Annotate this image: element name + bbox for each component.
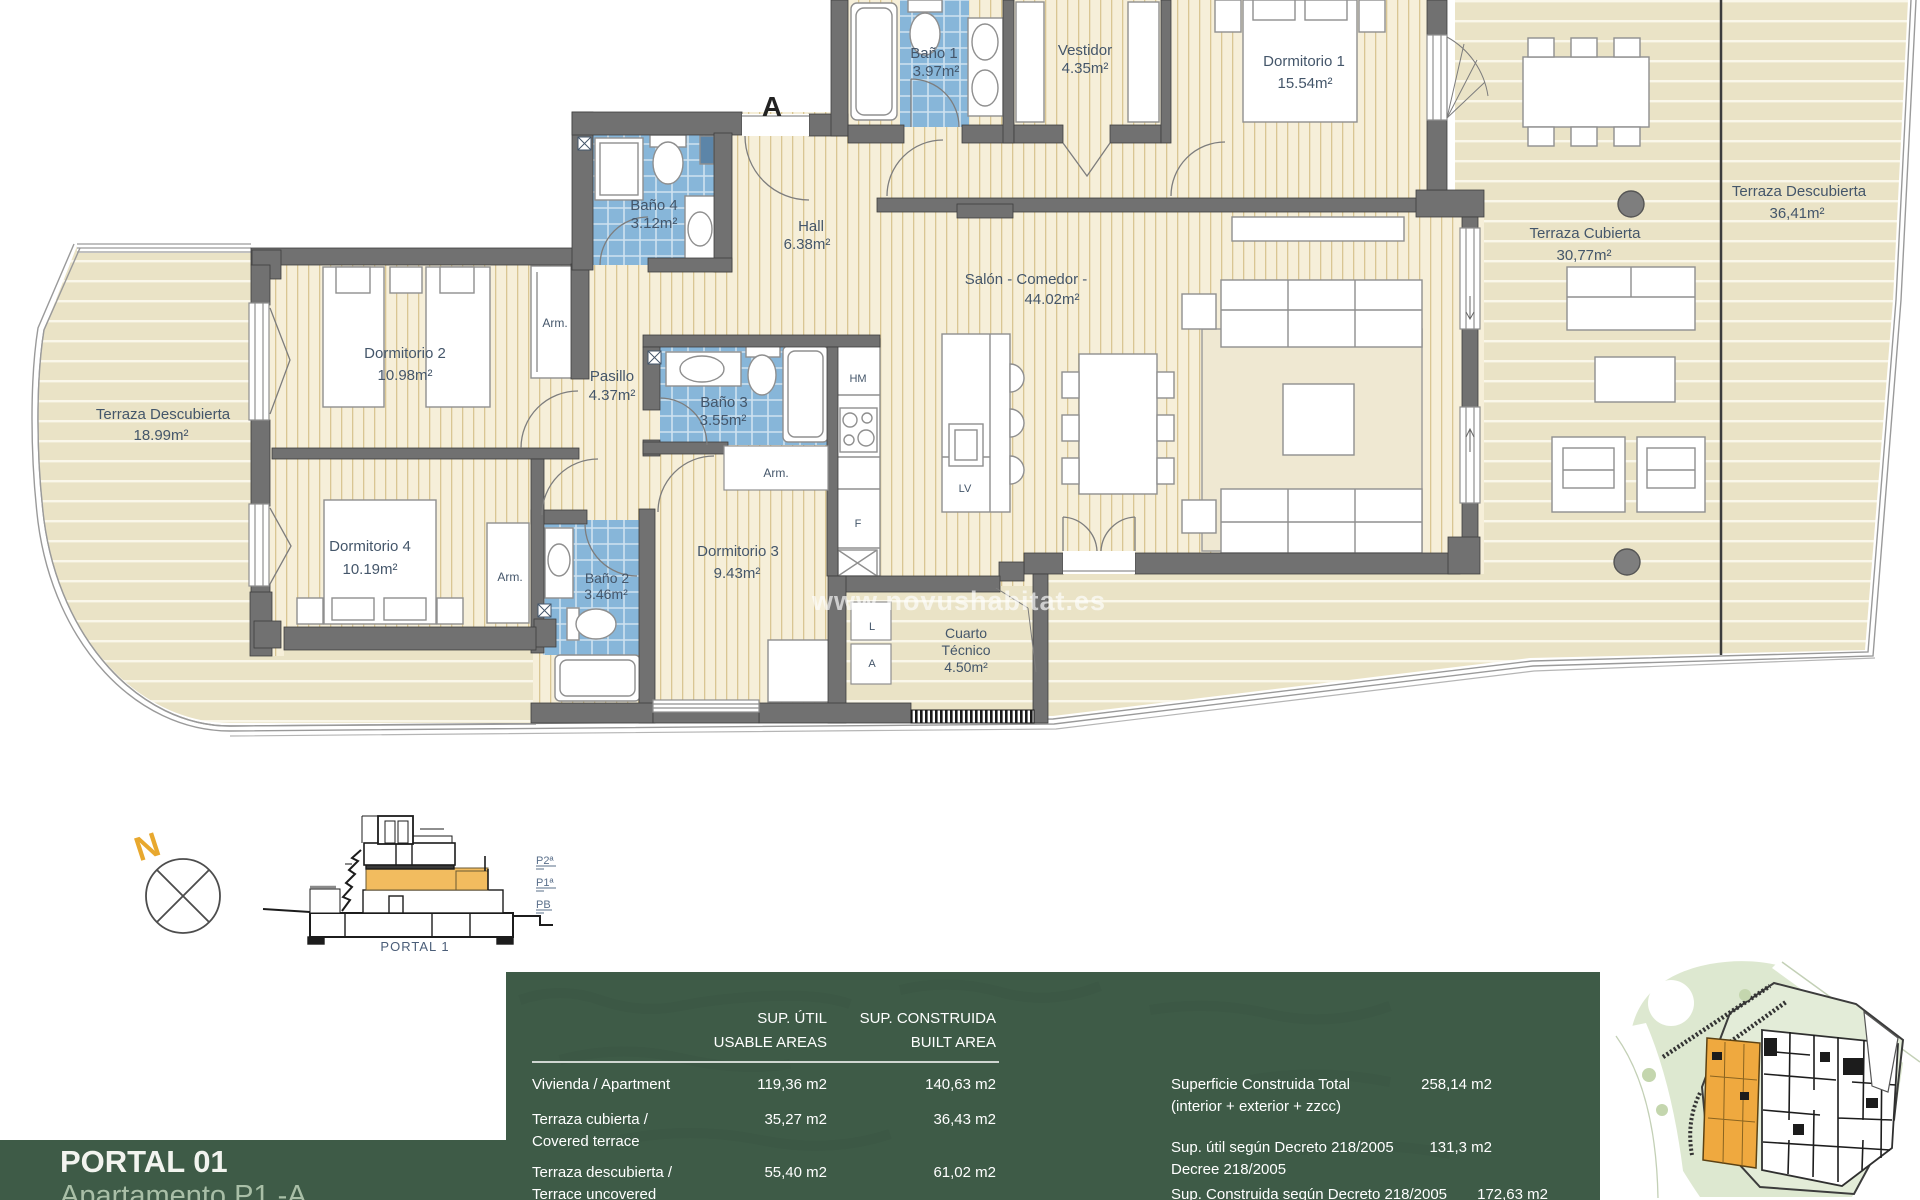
- svg-text:6.38m²: 6.38m²: [784, 236, 831, 253]
- svg-text:Dormitorio 1: Dormitorio 1: [1263, 53, 1345, 70]
- svg-text:10.98m²: 10.98m²: [377, 367, 432, 384]
- svg-text:Terrace uncovered: Terrace uncovered: [532, 1186, 656, 1200]
- svg-text:Hall: Hall: [798, 218, 824, 235]
- svg-text:Terraza cubierta /: Terraza cubierta /: [532, 1111, 649, 1128]
- svg-text:P1ª: P1ª: [536, 877, 554, 889]
- svg-text:3.46m²: 3.46m²: [584, 586, 628, 602]
- svg-text:Salón - Comedor -: Salón - Comedor -: [965, 271, 1088, 288]
- svg-text:SUP. CONSTRUIDA: SUP. CONSTRUIDA: [860, 1010, 996, 1027]
- svg-text:F: F: [855, 518, 862, 530]
- svg-text:Dormitorio 2: Dormitorio 2: [364, 345, 446, 362]
- svg-text:44.02m²: 44.02m²: [1024, 291, 1079, 308]
- svg-text:Baño 1: Baño 1: [910, 45, 958, 62]
- svg-text:Terraza Cubierta: Terraza Cubierta: [1530, 225, 1642, 242]
- svg-text:140,63 m2: 140,63 m2: [925, 1076, 996, 1093]
- svg-text:Baño 4: Baño 4: [630, 197, 678, 214]
- svg-text:258,14 m2: 258,14 m2: [1421, 1076, 1492, 1093]
- svg-text:BUILT AREA: BUILT AREA: [911, 1034, 996, 1051]
- svg-text:18.99m²: 18.99m²: [133, 427, 188, 444]
- svg-text:15.54m²: 15.54m²: [1277, 75, 1332, 92]
- svg-text:USABLE AREAS: USABLE AREAS: [714, 1034, 827, 1051]
- svg-text:Dormitorio 4: Dormitorio 4: [329, 538, 411, 555]
- svg-text:3.12m²: 3.12m²: [631, 215, 678, 232]
- svg-text:36,41m²: 36,41m²: [1769, 205, 1824, 222]
- svg-text:Covered terrace: Covered terrace: [532, 1133, 640, 1150]
- svg-text:L: L: [869, 621, 875, 633]
- svg-text:172,63 m2: 172,63 m2: [1477, 1186, 1548, 1200]
- svg-text:Superficie Construida Total: Superficie Construida Total: [1171, 1076, 1350, 1093]
- svg-text:10.19m²: 10.19m²: [342, 561, 397, 578]
- svg-text:Terraza descubierta /: Terraza descubierta /: [532, 1164, 673, 1181]
- svg-text:Baño 3: Baño 3: [700, 394, 748, 411]
- svg-text:55,40 m2: 55,40 m2: [764, 1164, 827, 1181]
- svg-text:4.35m²: 4.35m²: [1062, 60, 1109, 77]
- svg-text:Arm.: Arm.: [542, 316, 567, 330]
- svg-text:131,3 m2: 131,3 m2: [1429, 1139, 1492, 1156]
- svg-text:PORTAL 01: PORTAL 01: [60, 1144, 228, 1179]
- svg-text:(interior + exterior + zzcc): (interior + exterior + zzcc): [1171, 1098, 1341, 1115]
- svg-text:Pasillo: Pasillo: [590, 368, 634, 385]
- svg-text:Dormitorio 3: Dormitorio 3: [697, 543, 779, 560]
- svg-text:Técnico: Técnico: [941, 642, 990, 658]
- svg-text:SUP. ÚTIL: SUP. ÚTIL: [757, 1010, 827, 1027]
- svg-text:Terraza Descubierta: Terraza Descubierta: [96, 406, 231, 423]
- svg-text:Arm.: Arm.: [497, 570, 522, 584]
- svg-text:Arm.: Arm.: [763, 466, 788, 480]
- svg-text:Terraza Descubierta: Terraza Descubierta: [1732, 183, 1867, 200]
- svg-text:30,77m²: 30,77m²: [1556, 247, 1611, 264]
- svg-text:PB: PB: [536, 899, 551, 911]
- svg-text:PORTAL 1: PORTAL 1: [380, 939, 449, 954]
- svg-text:A: A: [762, 91, 782, 122]
- svg-text:A: A: [868, 658, 876, 670]
- svg-text:Vivienda / Apartment: Vivienda / Apartment: [532, 1076, 671, 1093]
- svg-text:4.37m²: 4.37m²: [589, 387, 636, 404]
- svg-text:35,27 m2: 35,27 m2: [764, 1111, 827, 1128]
- svg-text:Cuarto: Cuarto: [945, 625, 987, 641]
- svg-text:Sup. Construida según Decreto: Sup. Construida según Decreto 218/2005: [1171, 1186, 1447, 1200]
- svg-text:Baño 2: Baño 2: [585, 570, 630, 586]
- svg-text:4.50m²: 4.50m²: [944, 659, 988, 675]
- svg-text:Apartamento P1 -A: Apartamento P1 -A: [60, 1180, 307, 1200]
- svg-text:3.97m²: 3.97m²: [913, 63, 960, 80]
- svg-text:HM: HM: [849, 373, 866, 385]
- svg-text:P2ª: P2ª: [536, 855, 554, 867]
- svg-text:LV: LV: [959, 483, 972, 495]
- svg-text:9.43m²: 9.43m²: [714, 565, 761, 582]
- svg-text:119,36 m2: 119,36 m2: [757, 1076, 827, 1093]
- svg-text:3.55m²: 3.55m²: [700, 412, 747, 429]
- svg-text:Decree 218/2005: Decree 218/2005: [1171, 1161, 1286, 1178]
- svg-text:61,02 m2: 61,02 m2: [933, 1164, 996, 1181]
- svg-text:www.novushabitat.es: www.novushabitat.es: [811, 586, 1106, 616]
- svg-text:36,43 m2: 36,43 m2: [933, 1111, 996, 1128]
- svg-text:Sup. útil según Decreto 218/20: Sup. útil según Decreto 218/2005: [1171, 1139, 1394, 1156]
- svg-text:Vestidor: Vestidor: [1058, 42, 1112, 59]
